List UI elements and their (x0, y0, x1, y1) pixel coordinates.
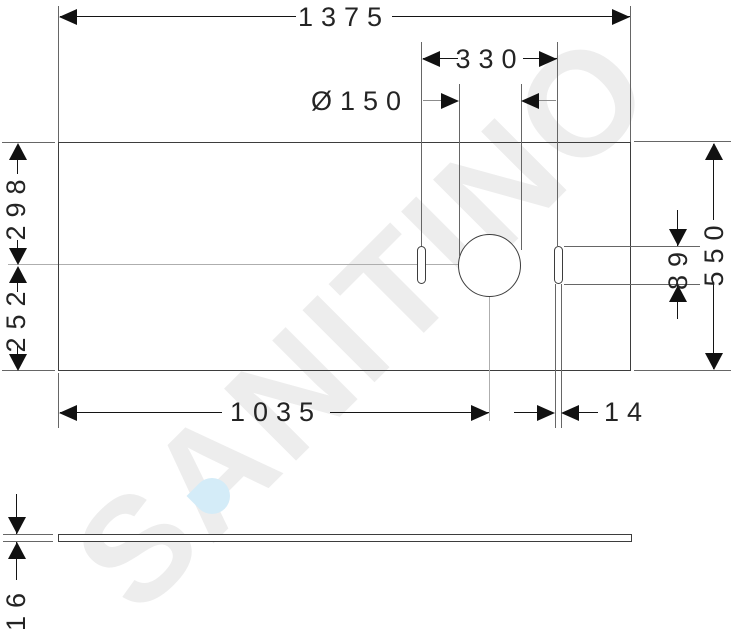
arrowhead-right (537, 405, 555, 421)
dim-rear-depth-label: 252 (2, 278, 30, 358)
extension-line (459, 84, 460, 256)
dim-hole-offset-label: 1035 (196, 398, 356, 426)
extension-line (557, 42, 558, 246)
dim-slot-length-label: 89 (664, 227, 692, 307)
arrowhead-left (521, 93, 539, 109)
dim-plate-thickness-label: 16 (2, 568, 30, 630)
arrowhead-up (8, 542, 26, 559)
extension-line (634, 370, 731, 371)
arrowhead-right (612, 9, 630, 25)
arrowhead-up (705, 143, 723, 160)
leader-stem (579, 412, 598, 413)
dim-line (60, 16, 296, 17)
arrowhead-right (539, 51, 557, 67)
extension-line (630, 6, 631, 142)
arrowhead-left (422, 51, 440, 67)
extension-line (634, 141, 731, 142)
arrowhead-left (561, 405, 579, 421)
slot-right (554, 246, 563, 284)
leader-stem (539, 100, 556, 101)
dim-slot-width-label: 14 (601, 398, 653, 426)
arrowhead-down (9, 248, 27, 265)
dim-slot-spacing-label: 330 (450, 45, 530, 73)
dim-hole-diameter-label: Ø150 (300, 87, 420, 115)
hole-center-line (489, 297, 490, 421)
extension-line (555, 284, 556, 428)
extension-line (3, 534, 53, 535)
leader-stem (423, 100, 442, 101)
leader-stem (514, 412, 538, 413)
arrowhead-left (59, 9, 77, 25)
arrowhead-down (8, 517, 26, 534)
arrowhead-right (471, 405, 489, 421)
dim-line (392, 16, 630, 17)
center-hole-circle (458, 234, 521, 297)
arrowhead-right (441, 93, 459, 109)
plate-profile-outline (58, 534, 632, 542)
extension-line (421, 42, 422, 246)
dim-front-depth-label: 298 (2, 166, 30, 246)
dimension-drawing: SANITINO 1375 330 Ø150 298 252 (0, 0, 732, 630)
arrowhead-up (9, 143, 27, 160)
dim-overall-depth-label: 550 (700, 212, 728, 292)
arrowhead-left (59, 405, 77, 421)
dim-overall-width-label: 1375 (264, 3, 424, 31)
extension-line (58, 6, 59, 142)
slot-left (417, 246, 426, 284)
arrowhead-down (705, 353, 723, 370)
countertop-outline (58, 142, 631, 371)
